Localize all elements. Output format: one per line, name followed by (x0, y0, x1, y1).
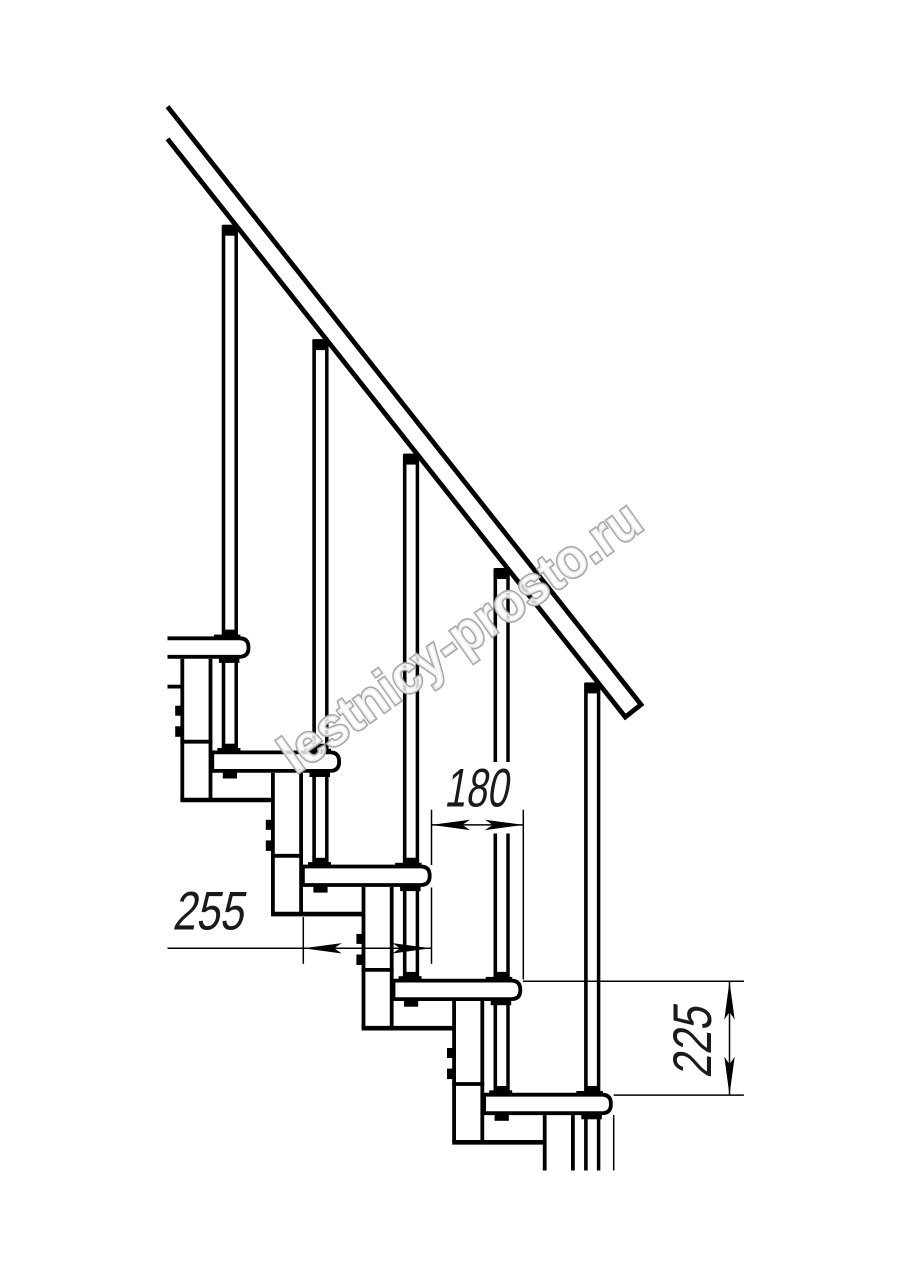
svg-text:180: 180 (442, 758, 516, 819)
svg-text:255: 255 (170, 881, 253, 942)
svg-text:225: 225 (663, 998, 724, 1081)
